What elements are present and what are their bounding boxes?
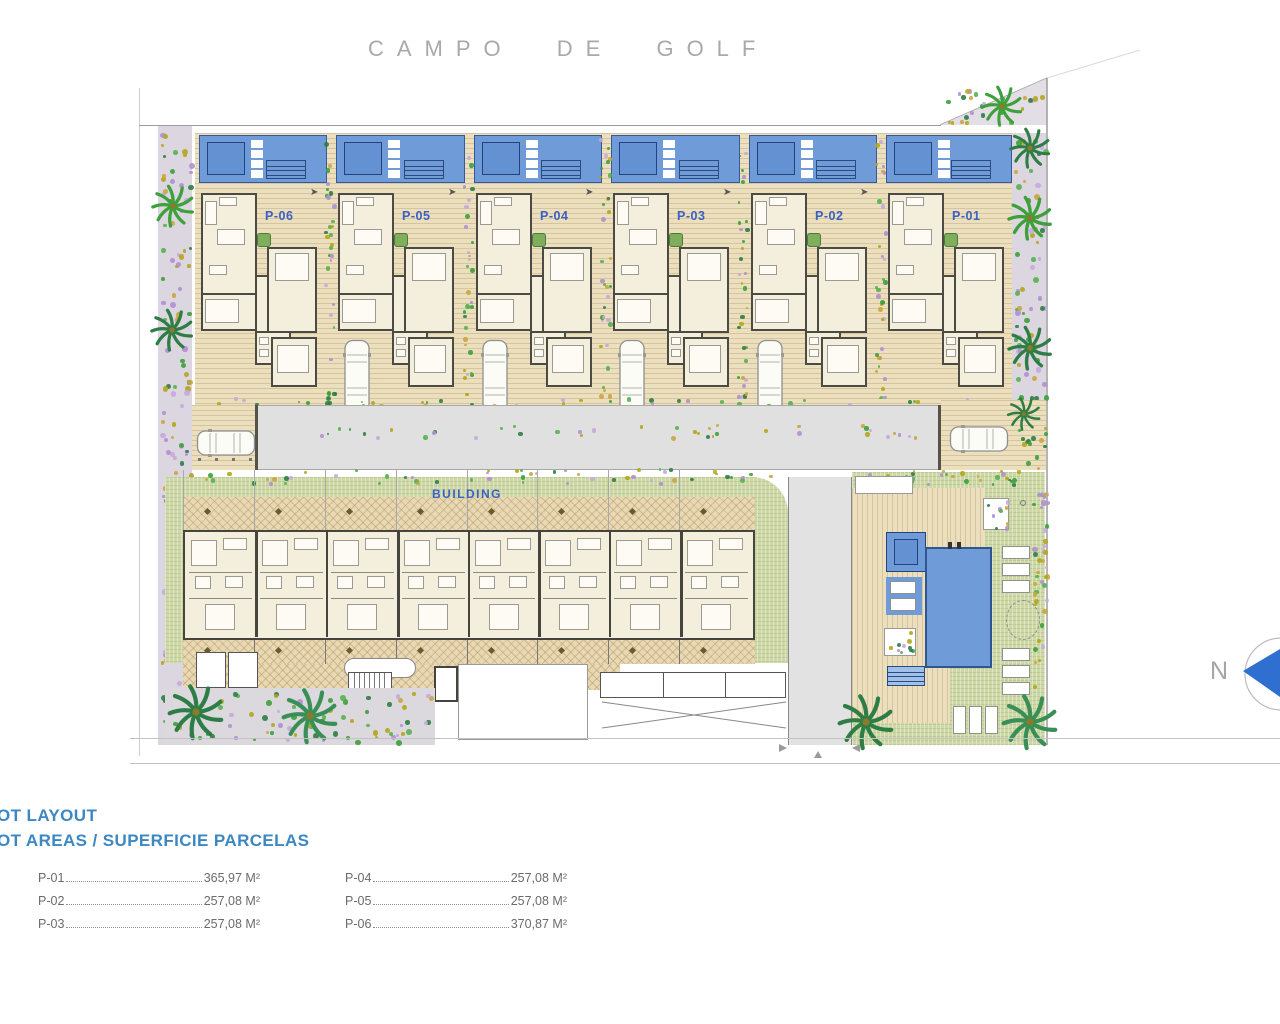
flower-box-plants — [897, 643, 901, 647]
plot-area-value: 365,97 M² — [204, 871, 260, 885]
dot-leader — [373, 881, 508, 882]
garden-bush — [1033, 96, 1038, 101]
palm-tree-icon — [980, 84, 1024, 128]
plot-id: P-02 — [38, 894, 64, 908]
furniture-bath-fixture — [946, 337, 956, 345]
garden-bush — [1033, 277, 1039, 283]
garden-bush — [185, 453, 188, 456]
garden-bush — [1038, 257, 1041, 260]
sun-lounger — [1002, 563, 1030, 576]
garden-bush — [350, 719, 354, 723]
furniture-bed-2 — [342, 299, 376, 323]
furniture-bed-3 — [277, 345, 309, 373]
plot-divider-bush — [326, 182, 330, 186]
plot-divider-bush — [877, 199, 881, 203]
sun-lounger — [969, 706, 982, 734]
pool-inner-square — [619, 142, 657, 175]
plot-divider-bush — [332, 392, 335, 395]
building-terrace-bottom — [183, 640, 755, 664]
garden-bush — [180, 461, 184, 465]
garden-bush — [173, 385, 177, 389]
gate-flowers — [439, 399, 443, 403]
footer-heading-layout: OT LAYOUT — [0, 806, 97, 826]
patio-planter — [669, 233, 683, 247]
unit-bath — [721, 576, 739, 588]
plot-area-value: 257,08 M² — [204, 917, 260, 931]
lawn-edge-flowers — [730, 476, 733, 479]
pool-step-line — [405, 170, 443, 171]
plot-divider-bush — [470, 187, 475, 192]
pool-zone-east-flowers — [1045, 566, 1048, 569]
lawn-edge-flowers — [272, 477, 277, 482]
plot-divider-bush — [600, 260, 603, 263]
road-edge-flowers — [865, 432, 870, 437]
lawn-edge-flowers — [663, 470, 667, 474]
flower-box-plants — [902, 644, 906, 648]
unit-wardrobe — [507, 538, 531, 550]
plot-area-value: 257,08 M² — [204, 894, 260, 908]
unit-wall-line — [189, 572, 252, 573]
garden-bush — [173, 150, 178, 155]
lawn-edge-flowers — [669, 468, 672, 471]
plot-divider-bush — [331, 220, 334, 223]
unit-wardrobe — [294, 538, 318, 550]
plot-divider-bush — [741, 169, 744, 172]
garden-bush — [270, 731, 274, 735]
unit-bed-bottom — [630, 604, 660, 630]
garden-bush — [366, 696, 370, 700]
pool-zone-east-flowers — [1042, 609, 1047, 614]
furniture-bed-3 — [827, 345, 859, 373]
lawn-edge-flowers — [435, 480, 439, 484]
road-edge-flowers — [914, 436, 918, 440]
garden-bush — [402, 705, 407, 710]
lawn-edge-flowers — [749, 473, 753, 477]
lawn-edge-flowers — [690, 478, 694, 482]
furniture-bath-fixture — [534, 337, 544, 345]
road-edge-flowers — [376, 436, 380, 440]
kids-pool — [886, 532, 926, 572]
pool-ladder-step — [663, 170, 675, 178]
garden-bush — [400, 724, 403, 727]
planter-plants — [995, 527, 999, 531]
plot-divider-bush — [883, 377, 887, 381]
plot-id: P-03 — [38, 917, 64, 931]
lawn-edge-flowers — [659, 482, 663, 486]
furniture-bed-2 — [892, 299, 926, 323]
main-pool-steps — [887, 666, 925, 686]
pool-ladder-step — [663, 160, 675, 168]
garden-bush — [1023, 180, 1026, 183]
road-edge-flowers — [578, 430, 582, 434]
furniture-desk — [346, 265, 364, 275]
plot-pool — [474, 135, 602, 183]
parking-tick — [198, 458, 201, 461]
plot-label-p-04: P-04 — [540, 209, 568, 223]
pool-step-line — [542, 166, 580, 167]
garden-bush — [181, 363, 186, 368]
furniture-bath-fixture — [534, 349, 544, 357]
plot-divider-bush — [470, 268, 475, 273]
pool-zone-east-flowers — [1040, 506, 1043, 509]
unit-party-wall — [538, 532, 541, 637]
access-road — [258, 405, 940, 470]
plot-divider-bush — [878, 245, 881, 248]
furniture-bath-fixture — [671, 349, 681, 357]
lawn-edge-flowers — [470, 478, 474, 482]
plot-label-p-01: P-01 — [952, 209, 980, 223]
furniture-bed-2 — [617, 299, 651, 323]
unit-bed-top — [475, 540, 501, 566]
main-pool — [925, 547, 992, 668]
patio-planter — [807, 233, 821, 247]
garden-bush — [340, 695, 346, 701]
plot-divider-bush — [324, 231, 327, 234]
road-edge-flowers — [675, 426, 679, 430]
road-edge-flowers — [390, 428, 394, 432]
unit-wall-line — [685, 572, 748, 573]
pool-zone-flowers — [1012, 483, 1016, 487]
unit-bath — [509, 576, 527, 588]
garden-bush — [387, 702, 392, 707]
pool-zone-flowers — [942, 470, 945, 473]
pool-steps — [404, 160, 444, 179]
plot-divider-bush — [745, 220, 748, 223]
plot-divider-bush — [469, 163, 474, 168]
lawn-edge-flowers — [612, 478, 615, 481]
garden-bush — [1044, 432, 1048, 436]
furniture-bed-1 — [275, 253, 309, 281]
balcony-divider — [325, 640, 326, 664]
gate-flowers — [908, 400, 912, 404]
plot-divider-bush — [883, 280, 887, 284]
furniture-bath-fixture — [809, 349, 819, 357]
pool-zone-flowers — [1005, 477, 1008, 480]
unit-bath — [367, 576, 385, 588]
plot-divider-bush — [465, 393, 468, 396]
plot-divider-bush — [609, 400, 612, 403]
pool-ladder-step — [938, 160, 950, 168]
plot-divider-bush — [324, 142, 329, 147]
pool-ladder-step — [388, 160, 400, 168]
lawn-edge-flowers — [769, 475, 773, 479]
deck-arrow-icon: ➤ — [448, 187, 462, 199]
plot-divider-bush — [745, 228, 749, 232]
road-edge-flowers — [338, 427, 341, 430]
garden-bush — [179, 443, 184, 448]
dot-leader — [66, 904, 201, 905]
furniture-sofa — [480, 201, 492, 225]
plot-divider-bush — [464, 225, 468, 229]
pool-ladder-step — [251, 170, 263, 178]
garden-bush — [961, 95, 965, 99]
garden-bush — [189, 171, 193, 175]
ramp-slab — [458, 664, 588, 740]
plot-divider-bush — [740, 315, 744, 319]
lawn-edge-flowers — [304, 471, 307, 474]
pool-ladder-step — [526, 140, 538, 148]
unit-wardrobe — [223, 538, 247, 550]
furniture-sofa-2 — [769, 197, 787, 206]
pool-zone-east-flowers — [1032, 503, 1036, 507]
garden-bush — [960, 120, 964, 124]
area-row-p-01: P-01365,97 M² — [38, 862, 260, 885]
lawn-edge-flowers — [637, 468, 641, 472]
plot-p-06: ➤P-06 — [195, 125, 332, 410]
furniture-bath-fixture — [259, 349, 269, 357]
road-edge-flowers — [697, 432, 700, 435]
pool-step-line — [817, 166, 855, 167]
pool-step-line — [405, 175, 443, 176]
unit-bed-bottom — [701, 604, 731, 630]
garden-bush — [161, 248, 166, 253]
pool-patio — [886, 577, 922, 615]
furniture-desk — [209, 265, 227, 275]
car-parking-west — [196, 428, 256, 458]
pool-steps — [266, 160, 306, 179]
garden-bush — [1038, 296, 1042, 300]
garden-bush — [406, 729, 412, 735]
pool-ladder-step — [388, 140, 400, 148]
furniture-dining-table — [492, 229, 520, 245]
plot-divider-bush — [464, 205, 468, 209]
patio-planter — [944, 233, 958, 247]
furniture-desk — [621, 265, 639, 275]
lawn-edge-flowers — [487, 477, 491, 481]
pool-inner-square — [344, 142, 382, 175]
palm-tree-icon — [149, 307, 195, 353]
road-edge-flowers — [712, 435, 715, 438]
pool-step-line — [952, 166, 990, 167]
pool-steps — [816, 160, 856, 179]
pool-zone-flowers — [960, 471, 964, 475]
plot-divider-bush — [471, 241, 474, 244]
garden-bush — [180, 359, 184, 363]
gate-flowers — [242, 399, 246, 403]
plot-label-p-06: P-06 — [265, 209, 293, 223]
lawn-edge-flowers — [211, 478, 216, 483]
unit-wall-line — [543, 598, 606, 599]
gate-flowers — [677, 399, 681, 403]
unit-guide-line — [254, 470, 255, 530]
pool-ladder-step — [938, 150, 950, 158]
plot-area-value: 370,87 M² — [511, 917, 567, 931]
furniture-sofa-2 — [356, 197, 374, 206]
gate-flowers — [579, 399, 582, 402]
garden-bush — [266, 700, 272, 706]
plot-divider-bush — [875, 143, 880, 148]
dot-leader — [373, 927, 508, 928]
car-p-03 — [617, 339, 647, 413]
pool-step-line — [680, 166, 718, 167]
unit-table — [266, 576, 282, 589]
plot-divider-bush — [326, 396, 331, 401]
plot-divider-bush — [738, 221, 742, 225]
unit-guide-line — [608, 470, 609, 530]
lawn-edge-flowers — [284, 482, 287, 485]
palm-tree-icon — [166, 682, 226, 742]
garden-bush — [373, 730, 379, 736]
unit-wall-line — [402, 598, 465, 599]
pool-ladder-step — [388, 150, 400, 158]
patio-planter — [257, 233, 271, 247]
garden-bush — [1043, 445, 1047, 449]
area-row-p-02: P-02257,08 M² — [38, 885, 260, 908]
unit-table — [479, 576, 495, 589]
unit-party-wall — [680, 532, 683, 637]
garden-bush — [1042, 382, 1047, 387]
plot-divider-bush — [882, 165, 885, 168]
pool-step-line — [680, 175, 718, 176]
garden-bush — [161, 144, 164, 147]
lawn-edge-flowers — [725, 475, 729, 479]
garden-bush — [385, 728, 390, 733]
dot-leader — [66, 927, 201, 928]
garden-bush — [171, 391, 176, 396]
furniture-sofa — [617, 201, 629, 225]
unit-bed-top — [333, 540, 359, 566]
pool-step-line — [542, 170, 580, 171]
balcony-divider — [537, 640, 538, 664]
unit-table — [195, 576, 211, 589]
garden-bush — [184, 372, 189, 377]
unit-bed-bottom — [347, 604, 377, 630]
pool-zone-east-flowers — [1042, 583, 1047, 588]
pool-steps — [679, 160, 719, 179]
storage-box — [228, 652, 258, 688]
plot-divider-bush — [329, 358, 332, 361]
lawn-edge-flowers — [289, 476, 293, 480]
plot-divider-bush — [739, 228, 742, 231]
furniture-sofa — [205, 201, 217, 225]
unit-table — [620, 576, 636, 589]
plot-divider-bush — [608, 173, 613, 178]
unit-party-wall — [609, 532, 611, 637]
garden-bush — [170, 169, 175, 174]
unit-bed-bottom — [559, 604, 589, 630]
pool-inner-square — [894, 142, 932, 175]
pool-step-line — [405, 166, 443, 167]
garden-bush — [970, 111, 974, 115]
patio-planter — [532, 233, 546, 247]
palm-tree-icon — [280, 686, 340, 746]
plot-pool — [886, 135, 1012, 183]
unit-guide-line — [325, 470, 326, 530]
unit-bed-top — [191, 540, 217, 566]
plot-label-p-05: P-05 — [402, 209, 430, 223]
plot-divider-bush — [463, 337, 468, 342]
pool-zone-east-flowers — [1033, 685, 1037, 689]
deck-arrow-icon: ➤ — [310, 187, 324, 199]
unit-bath — [296, 576, 314, 588]
unit-party-wall — [397, 532, 400, 637]
pool-zone-flowers — [1017, 470, 1021, 474]
unit-wall-line — [685, 598, 748, 599]
pool-step-line — [680, 170, 718, 171]
plot-divider-bush — [466, 290, 471, 295]
lawn-edge-flowers — [520, 469, 523, 472]
road-edge-flowers — [363, 432, 367, 436]
garden-bush — [951, 121, 954, 124]
lawn-edge-flowers — [553, 470, 556, 473]
pool-step-line — [542, 175, 580, 176]
ramp-cell-line — [663, 673, 664, 697]
unit-party-wall — [468, 532, 470, 637]
unit-bed-top — [545, 540, 571, 566]
palm-tree-icon — [150, 183, 196, 229]
unit-bed-bottom — [276, 604, 306, 630]
unit-wall-line — [543, 572, 606, 573]
ramp-parking-row — [600, 672, 786, 698]
pool-inner-square — [207, 142, 245, 175]
garden-bush — [1016, 184, 1022, 190]
pool-ladder-step — [801, 160, 813, 168]
gate-flowers — [234, 397, 238, 401]
garden-bush — [179, 254, 184, 259]
pool-ladder-step — [801, 140, 813, 148]
plot-area-value: 257,08 M² — [511, 894, 567, 908]
furniture-bath-fixture — [671, 337, 681, 345]
road-edge-flowers — [592, 428, 596, 432]
unit-bath — [225, 576, 243, 588]
plot-divider-bush — [881, 204, 885, 208]
plot-divider-bush — [608, 394, 613, 399]
unit-bath — [438, 576, 456, 588]
unit-table — [337, 576, 353, 589]
garden-bush — [174, 471, 178, 475]
building-units-row — [183, 530, 755, 640]
lawn-edge-flowers — [378, 482, 381, 485]
garden-bush — [1022, 312, 1025, 315]
pergola — [855, 476, 913, 494]
plot-pool — [611, 135, 740, 183]
pool-zone-east-flowers — [1043, 539, 1047, 543]
plot-divider-bush — [463, 185, 466, 188]
pool-inner-square — [757, 142, 795, 175]
plot-divider-bush — [326, 188, 329, 191]
unit-guide-line — [537, 470, 538, 530]
lawn-edge-flowers — [659, 468, 662, 471]
areas-table-right-column: P-04257,08 M²P-05257,08 M²P-06370,87 M² — [345, 862, 567, 931]
building-unit — [681, 532, 752, 637]
plot-divider-bush — [331, 225, 334, 228]
sun-lounger — [1002, 648, 1030, 661]
furniture-dining-table — [217, 229, 245, 245]
unit-wall-line — [473, 598, 536, 599]
pool-step-line — [888, 681, 924, 682]
unit-bed-top — [616, 540, 642, 566]
car-p-05 — [342, 339, 372, 413]
areas-table-left-column: P-01365,97 M²P-02257,08 M²P-03257,08 M² — [38, 862, 260, 931]
palm-tree-icon — [1000, 692, 1060, 752]
pool-inner-square — [482, 142, 520, 175]
plot-divider-bush — [876, 294, 881, 299]
garden-bush — [172, 293, 176, 297]
area-row-p-04: P-04257,08 M² — [345, 862, 567, 885]
plot-id: P-06 — [345, 917, 371, 931]
plot-divider-bush — [738, 273, 741, 276]
lawn-edge-flowers — [650, 479, 653, 482]
footer-heading-areas: OT AREAS / SUPERFICIE PARCELAS — [0, 831, 309, 851]
sun-lounger — [1002, 580, 1030, 593]
furniture-bath-fixture — [396, 337, 406, 345]
sun-lounger — [1002, 546, 1030, 559]
building-unit — [610, 532, 681, 637]
site-plan-page: { "title": "CAMPO DE GOLF", "building": … — [0, 0, 1280, 1024]
lawn-edge-flowers — [208, 473, 213, 478]
road-edge-flowers — [555, 430, 560, 435]
lawn-edge-flowers — [269, 482, 273, 486]
